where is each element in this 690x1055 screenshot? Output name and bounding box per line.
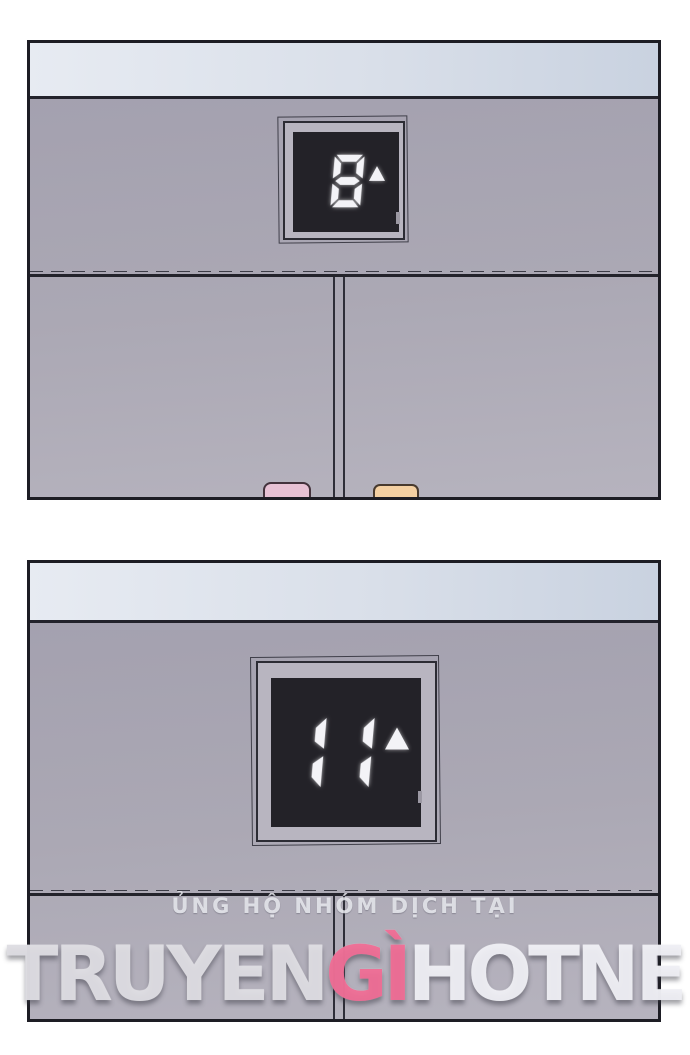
elevator-door-seam: [343, 277, 345, 497]
floor-indicator-screen: [271, 678, 421, 827]
floor-number-seven-segment: [328, 153, 368, 209]
floor-indicator-display: [283, 121, 405, 240]
watermark-support-text: ỦNG HỘ NHÓM DỊCH TẠI: [0, 894, 690, 918]
elevator-ceiling: [30, 563, 658, 623]
brand-part-hotne: HOTNE: [408, 936, 684, 1012]
person-head-pink: [263, 482, 311, 497]
comic-panel-1: [27, 40, 661, 500]
floor-indicator-screen: [293, 132, 399, 232]
elevator-ceiling: [30, 43, 658, 99]
screen-edge-notch: [396, 212, 400, 224]
up-arrow-icon: [385, 727, 409, 750]
watermark-brand: TRUYENGÌHOTNE: [0, 936, 690, 1012]
up-arrow-icon: [369, 166, 385, 181]
floor-number-seven-segment: [307, 713, 378, 792]
person-head-orange: [373, 484, 419, 497]
brand-part-truyen: TRUYEN: [7, 936, 326, 1012]
brand-part-gi: GÌ: [325, 936, 408, 1012]
screen-edge-notch: [418, 791, 422, 803]
elevator-door-seam: [333, 277, 335, 497]
floor-indicator-display: [256, 661, 437, 842]
